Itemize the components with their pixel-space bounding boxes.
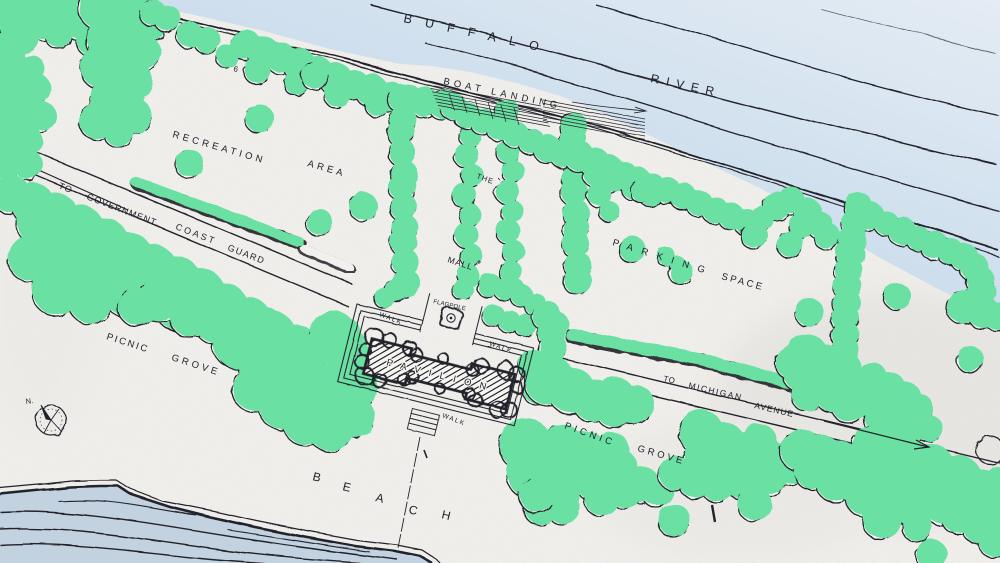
svg-text:N.: N.	[25, 396, 34, 406]
